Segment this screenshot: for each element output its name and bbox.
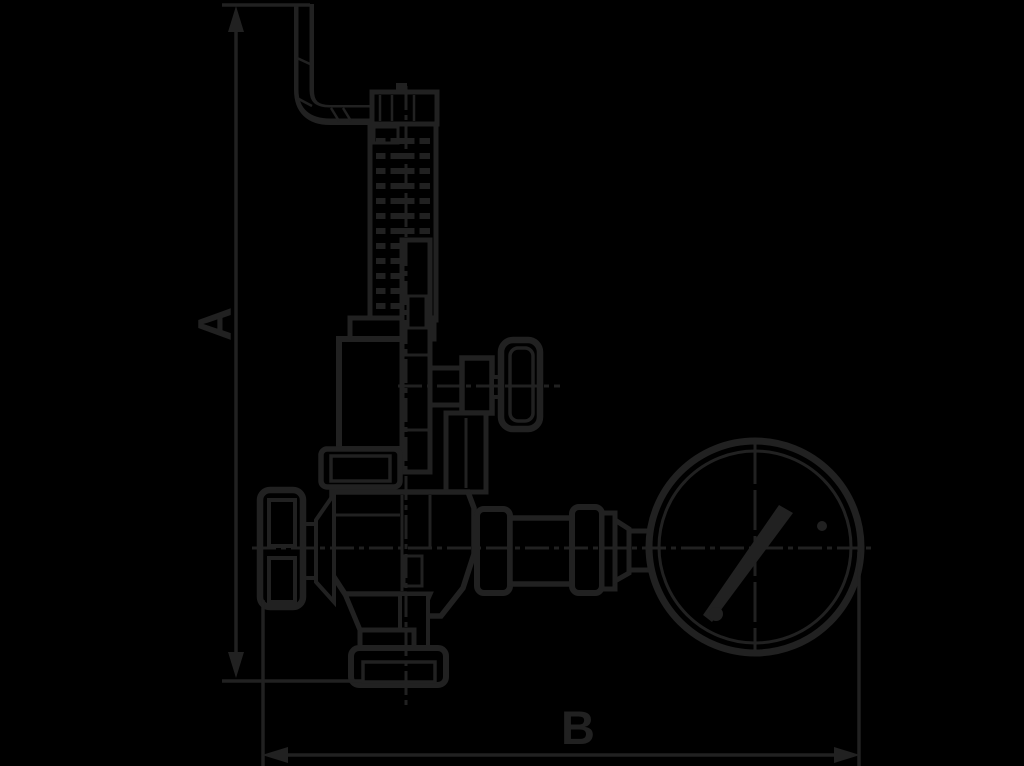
- valve-technical-drawing: A B: [0, 0, 1024, 766]
- upper-flange: [321, 449, 400, 487]
- arrowhead-left: [262, 747, 288, 763]
- union-nut: [572, 507, 602, 593]
- union-nut: [477, 509, 510, 593]
- gauge-dot: [817, 521, 827, 531]
- dimension-b-label: B: [561, 701, 595, 754]
- side-tap-assembly: [430, 340, 540, 492]
- arrowhead-down: [228, 652, 244, 678]
- arrowhead-right: [834, 747, 860, 763]
- lever-handle: [297, 4, 374, 121]
- dimension-a-label: A: [188, 307, 241, 341]
- drawing-canvas: A B: [0, 0, 1024, 766]
- gauge-dot: [709, 607, 723, 621]
- gauge-pipe-fittings: [477, 507, 650, 593]
- bottom-flange: [351, 648, 446, 685]
- arrowhead-up: [228, 6, 244, 32]
- pipe-body: [510, 518, 574, 584]
